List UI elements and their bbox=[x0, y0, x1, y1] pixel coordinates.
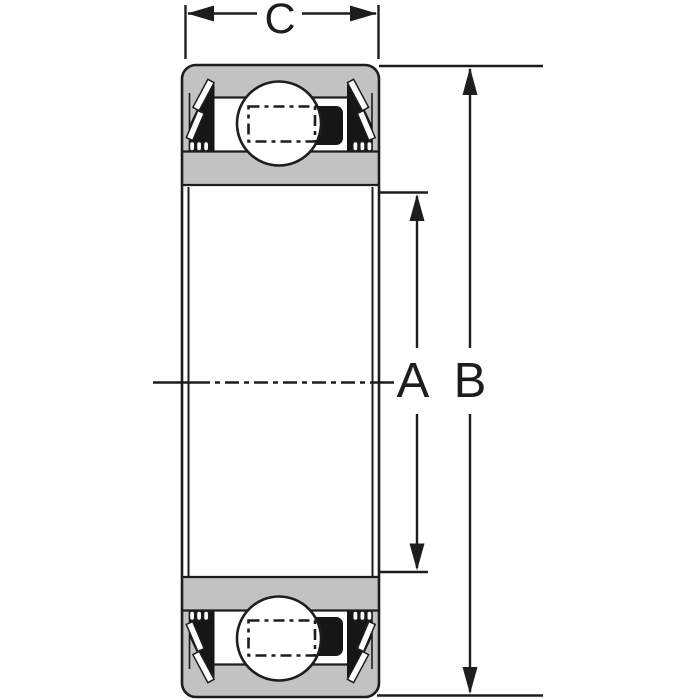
label-bore-a: A bbox=[397, 354, 430, 408]
b-arrow-up-icon bbox=[463, 68, 478, 96]
seal-lip-finger bbox=[197, 142, 202, 152]
bearing-cross-section-diagram: C A B bbox=[0, 0, 700, 700]
seal-lip-finger bbox=[204, 142, 209, 152]
b-arrow-down-icon bbox=[463, 667, 478, 694]
a-arrow-up-icon bbox=[410, 194, 425, 221]
a-arrow-down-icon bbox=[410, 544, 425, 571]
c-arrow-right-icon bbox=[350, 6, 377, 22]
bearing-diagram-page: C A B bbox=[0, 0, 700, 700]
seal-lip-finger bbox=[190, 142, 195, 152]
label-width-c: C bbox=[264, 0, 295, 43]
c-arrow-left-icon bbox=[187, 6, 214, 22]
bearing-body bbox=[182, 65, 379, 697]
label-outer-b: B bbox=[454, 354, 487, 408]
dimension-c: C bbox=[186, 0, 379, 59]
